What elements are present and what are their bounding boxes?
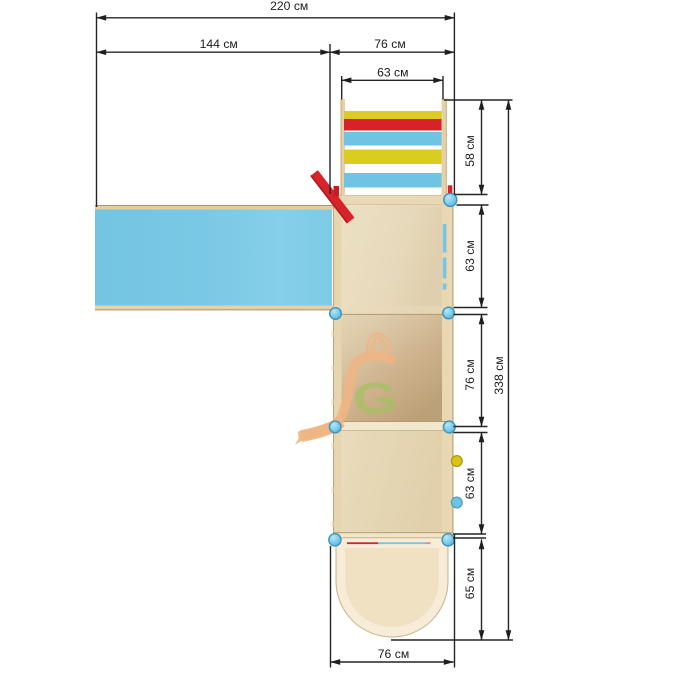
svg-text:58 см: 58 см — [463, 135, 477, 166]
svg-text:76 см: 76 см — [378, 647, 409, 661]
svg-text:65 см: 65 см — [463, 568, 477, 599]
svg-text:63 см: 63 см — [377, 66, 408, 80]
svg-text:G: G — [353, 373, 398, 423]
svg-text:63 см: 63 см — [463, 240, 477, 271]
svg-text:76 см: 76 см — [374, 37, 405, 51]
svg-text:63 см: 63 см — [463, 468, 477, 499]
svg-text:338 см: 338 см — [492, 356, 506, 394]
svg-text:144 см: 144 см — [200, 37, 238, 51]
svg-text:76 см: 76 см — [463, 359, 477, 390]
svg-text:220 см: 220 см — [270, 0, 308, 13]
